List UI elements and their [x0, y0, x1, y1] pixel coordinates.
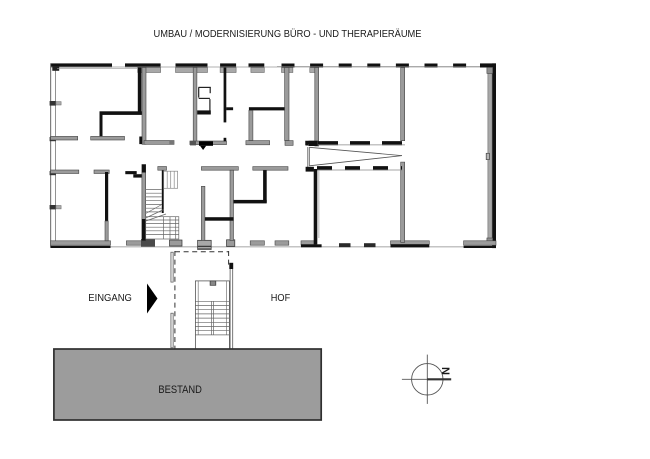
- svg-text:BESTAND: BESTAND: [158, 384, 202, 396]
- svg-text:EINGANG: EINGANG: [88, 293, 132, 304]
- svg-text:UMBAU / MODERNISIERUNG BÜRO -: UMBAU / MODERNISIERUNG BÜRO - UND THERAP…: [154, 28, 422, 40]
- svg-text:HOF: HOF: [271, 293, 290, 304]
- svg-text:N: N: [439, 367, 451, 375]
